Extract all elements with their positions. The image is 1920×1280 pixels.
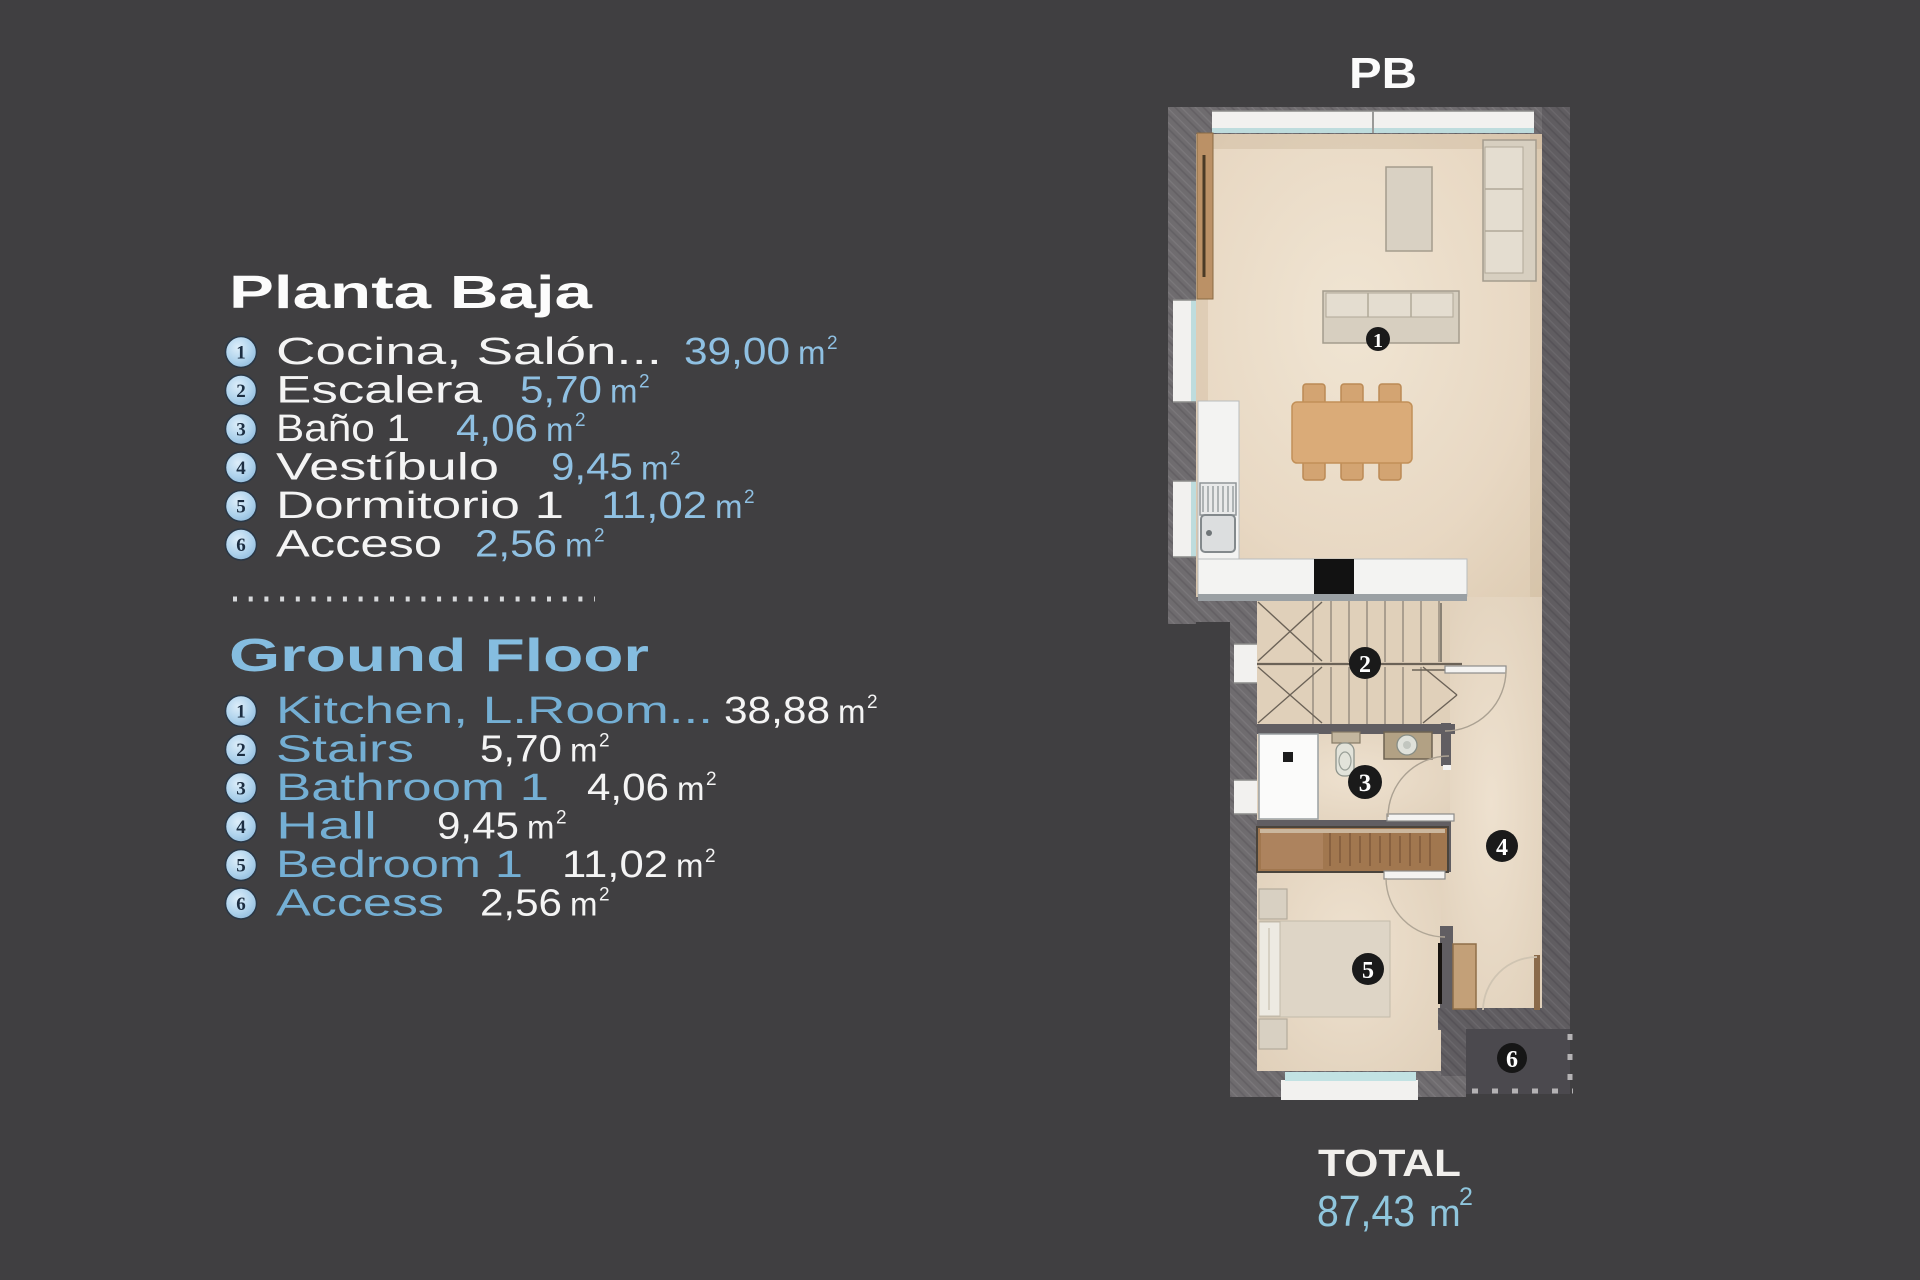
svg-text:2: 2	[827, 333, 838, 354]
svg-text:m: m	[565, 527, 593, 564]
svg-text:5,70: 5,70	[480, 729, 562, 771]
svg-text:m: m	[1429, 1193, 1461, 1235]
svg-text:3: 3	[236, 779, 246, 800]
svg-text:2: 2	[705, 846, 716, 867]
svg-text:2: 2	[599, 885, 610, 906]
svg-text:87,43: 87,43	[1317, 1187, 1415, 1236]
svg-text:11,02: 11,02	[601, 485, 707, 527]
svg-text:2: 2	[1359, 652, 1371, 678]
svg-text:2,56: 2,56	[480, 883, 562, 925]
svg-text:m: m	[676, 847, 704, 884]
svg-text:Ground Floor: Ground Floor	[229, 629, 649, 681]
svg-text:m: m	[838, 693, 866, 730]
svg-text:2: 2	[706, 769, 717, 790]
svg-text:38,88: 38,88	[724, 690, 830, 732]
svg-text:2: 2	[236, 381, 246, 402]
svg-text:2: 2	[594, 526, 605, 547]
svg-text:1: 1	[236, 343, 246, 364]
svg-text:3: 3	[1359, 770, 1372, 797]
svg-text:m: m	[527, 809, 555, 846]
svg-text:Dormitorio 1: Dormitorio 1	[276, 485, 564, 527]
svg-text:m: m	[715, 488, 743, 525]
svg-text:Escalera: Escalera	[276, 370, 483, 412]
svg-text:Cocina, Salón...: Cocina, Salón...	[276, 331, 662, 373]
svg-text:m: m	[570, 732, 598, 769]
svg-text:2: 2	[744, 487, 755, 508]
svg-text:m: m	[570, 886, 598, 923]
svg-text:5: 5	[236, 856, 246, 877]
svg-text:5: 5	[1362, 958, 1374, 984]
svg-text:Kitchen, L.Room...: Kitchen, L.Room...	[276, 690, 713, 732]
svg-text:Baño 1: Baño 1	[276, 408, 410, 450]
svg-text:m: m	[677, 770, 705, 807]
svg-text:3: 3	[236, 420, 246, 441]
svg-text:5,70: 5,70	[520, 370, 602, 412]
svg-text:Planta Baja: Planta Baja	[229, 266, 593, 318]
svg-text:Vestíbulo: Vestíbulo	[276, 447, 499, 489]
svg-text:6: 6	[236, 894, 246, 915]
svg-text:4: 4	[236, 458, 246, 479]
svg-text:1: 1	[236, 702, 246, 723]
svg-text:1: 1	[1373, 330, 1383, 352]
svg-text:m: m	[610, 373, 638, 410]
svg-text:9,45: 9,45	[551, 447, 633, 489]
svg-text:m: m	[546, 411, 574, 448]
svg-text:2: 2	[639, 372, 650, 393]
svg-text:Bathroom 1: Bathroom 1	[276, 767, 549, 809]
svg-text:2: 2	[599, 731, 610, 752]
svg-text:Acceso: Acceso	[276, 524, 442, 566]
svg-text:PB: PB	[1349, 49, 1417, 98]
svg-text:4,06: 4,06	[587, 767, 669, 809]
svg-text:6: 6	[1506, 1047, 1518, 1073]
svg-text:39,00: 39,00	[684, 331, 790, 373]
svg-text:6: 6	[236, 535, 246, 556]
svg-text:2: 2	[670, 449, 681, 470]
svg-text:2: 2	[1459, 1183, 1473, 1211]
svg-text:9,45: 9,45	[437, 806, 519, 848]
svg-text:4: 4	[236, 817, 246, 838]
svg-text:2: 2	[236, 740, 246, 761]
svg-text:2: 2	[556, 808, 567, 829]
svg-text:4: 4	[1496, 835, 1508, 861]
svg-text:Hall: Hall	[276, 806, 377, 848]
svg-text:2: 2	[867, 692, 878, 713]
svg-text:TOTAL: TOTAL	[1318, 1143, 1461, 1185]
svg-text:2,56: 2,56	[475, 524, 557, 566]
svg-text:m: m	[641, 450, 669, 487]
svg-text:m: m	[798, 334, 826, 371]
svg-text:4,06: 4,06	[456, 408, 538, 450]
svg-text:5: 5	[236, 497, 246, 518]
svg-text:2: 2	[575, 410, 586, 431]
svg-text:Bedroom 1: Bedroom 1	[276, 844, 523, 886]
svg-text:11,02: 11,02	[562, 844, 668, 886]
svg-text:Stairs: Stairs	[276, 729, 414, 771]
svg-text:Access: Access	[276, 883, 444, 925]
